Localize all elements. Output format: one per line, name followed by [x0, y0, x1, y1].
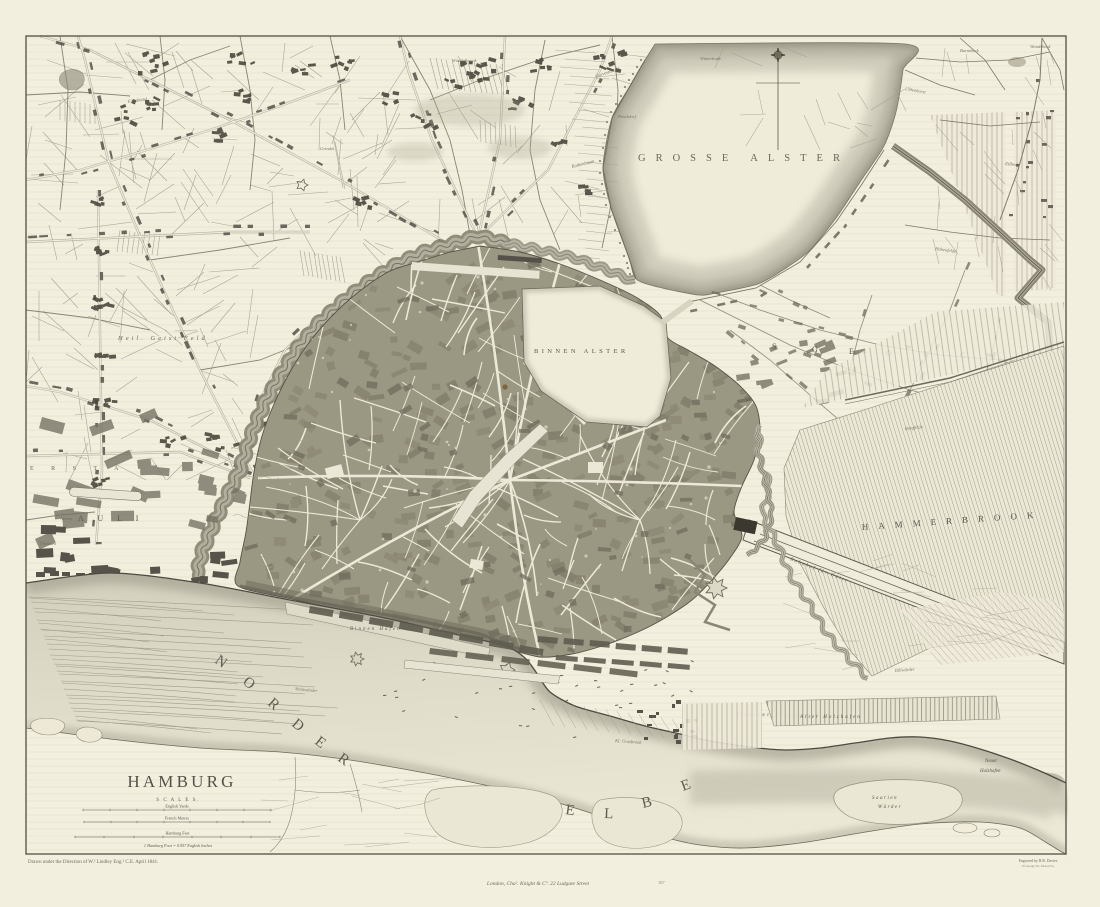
- svg-text:E R S T A: E R S T A: [30, 466, 126, 472]
- svg-text:Winterhude: Winterhude: [700, 56, 721, 61]
- svg-text:Ottensen: Ottensen: [40, 541, 57, 546]
- svg-text:1 Hamburg Foot = 0.957 English: 1 Hamburg Foot = 0.957 English Inches: [144, 843, 213, 848]
- svg-text:Drawn under the Direction of W: Drawn under the Direction of W.² Lindley…: [28, 859, 158, 865]
- svg-text:L: L: [604, 806, 614, 822]
- svg-text:187: 187: [658, 880, 666, 885]
- svg-text:Altona: Altona: [59, 516, 73, 521]
- svg-text:Heil. Geist Feld: Heil. Geist Feld: [117, 335, 208, 342]
- svg-text:GROSSE ALSTER: GROSSE ALSTER: [638, 153, 850, 164]
- svg-text:Wandsbeck: Wandsbeck: [1030, 44, 1051, 49]
- svg-text:BINNEN ALSTER: BINNEN ALSTER: [534, 348, 629, 355]
- svg-text:Holzhafen: Holzhafen: [979, 769, 1001, 774]
- svg-text:HAMBURG: HAMBURG: [127, 772, 236, 791]
- svg-text:Alter Holzhafen: Alter Holzhafen: [799, 715, 862, 720]
- svg-text:G: G: [812, 345, 818, 354]
- svg-text:Grindel: Grindel: [320, 146, 335, 151]
- svg-text:S: S: [772, 342, 776, 351]
- svg-text:E: E: [849, 347, 854, 356]
- svg-text:Engraved by B.R. Davies: Engraved by B.R. Davies: [1019, 859, 1058, 863]
- svg-text:16 George Str. Euston Sq.: 16 George Str. Euston Sq.: [1021, 864, 1054, 868]
- svg-text:English Yards: English Yards: [165, 804, 189, 809]
- svg-text:Saarien: Saarien: [872, 796, 898, 801]
- svg-text:Wöddelbrook: Wöddelbrook: [452, 58, 478, 63]
- svg-text:Hamburg Feet: Hamburg Feet: [166, 831, 191, 836]
- svg-text:French Metres: French Metres: [165, 816, 190, 821]
- svg-text:Pöseldorf: Pöseldorf: [617, 114, 637, 119]
- svg-text:London, Cha². Knight & Cº. 22: London, Cha². Knight & Cº. 22 Ludgate St…: [486, 881, 590, 887]
- svg-text:A U L I: A U L I: [78, 514, 144, 523]
- svg-text:S C A L E S.: S C A L E S.: [156, 798, 199, 803]
- svg-text:Neuer: Neuer: [984, 759, 997, 764]
- svg-text:Binnen Hafen: Binnen Hafen: [350, 627, 402, 632]
- svg-text:Wärder: Wärder: [878, 805, 902, 810]
- svg-text:Barmbeck: Barmbeck: [960, 48, 980, 53]
